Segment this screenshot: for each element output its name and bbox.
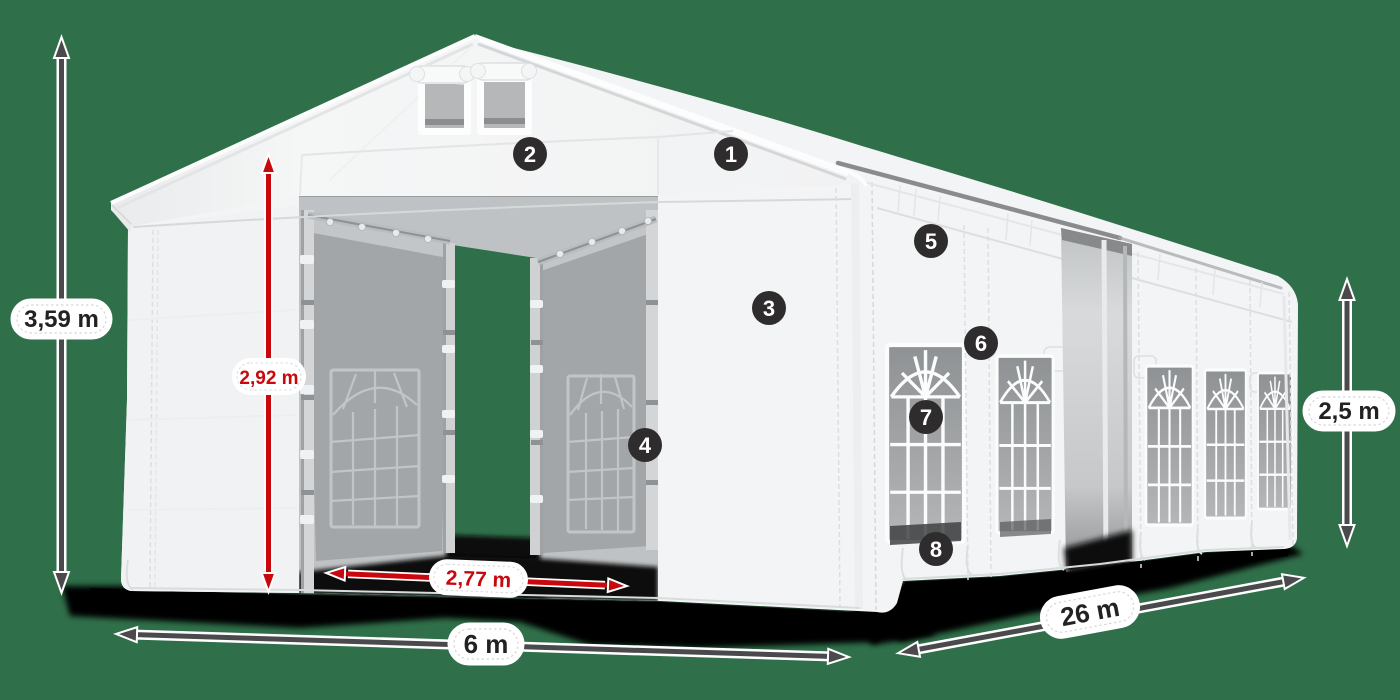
svg-text:6: 6 [975,331,987,356]
svg-text:6 m: 6 m [464,629,509,659]
svg-text:4: 4 [639,433,652,458]
svg-text:2,92 m: 2,92 m [239,368,298,389]
svg-text:3,59 m: 3,59 m [24,306,99,333]
svg-text:5: 5 [925,229,937,254]
svg-text:2,5 m: 2,5 m [1318,398,1379,425]
svg-text:3: 3 [763,296,775,321]
svg-text:8: 8 [930,537,942,562]
svg-text:2: 2 [524,142,536,167]
svg-text:1: 1 [725,142,737,167]
svg-text:2,77 m: 2,77 m [445,567,511,593]
svg-text:7: 7 [920,405,932,430]
